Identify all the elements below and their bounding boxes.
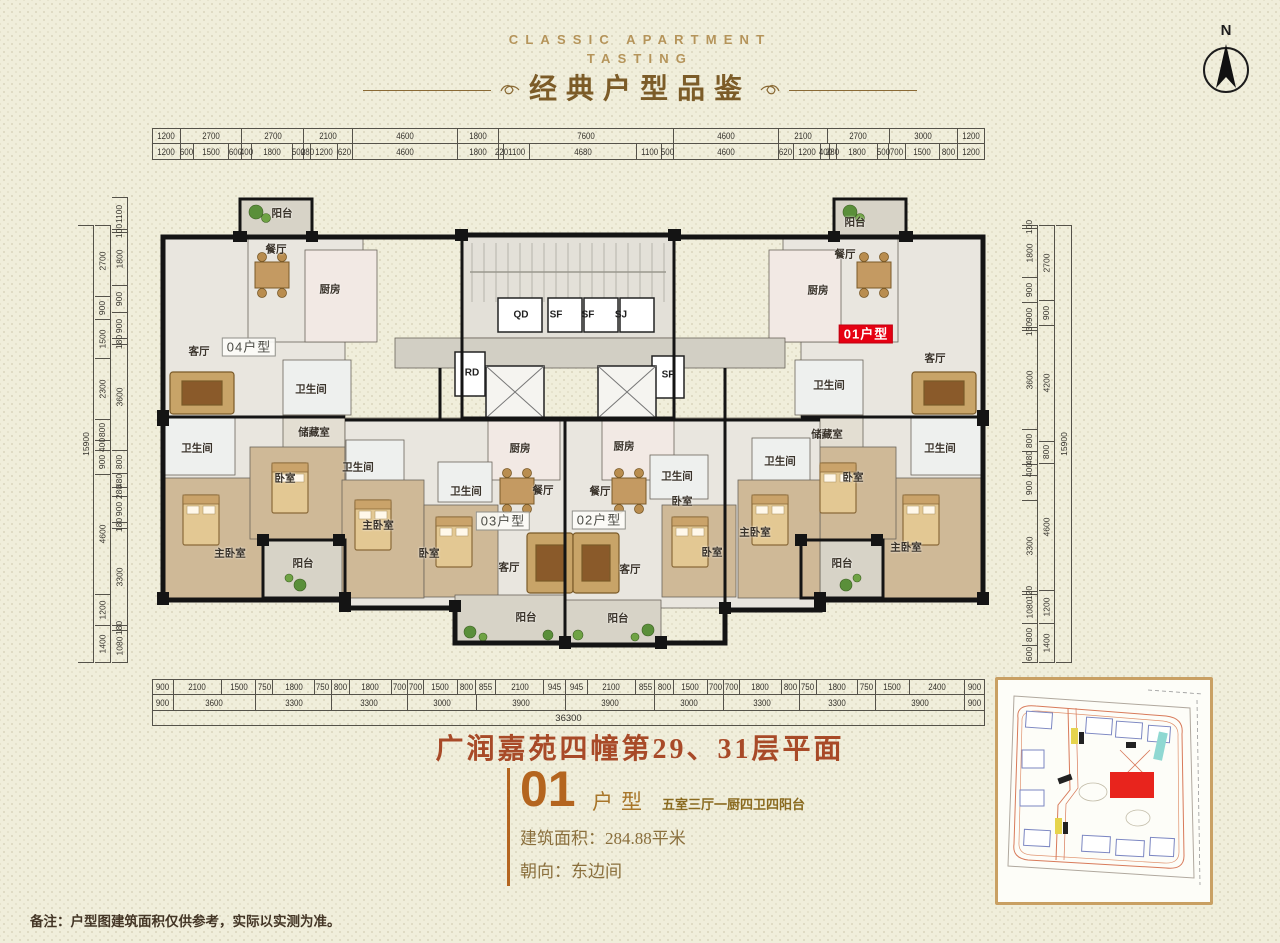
disclaimer-note: 备注：户型图建筑面积仅供参考，实际以实测为准。 [30, 910, 341, 930]
highlighted-building [1110, 772, 1154, 798]
bed-icon [752, 495, 788, 545]
orientation: 朝向：东边间 [520, 857, 622, 882]
unit-word: 户型 [592, 786, 650, 816]
bed-icon [820, 463, 856, 513]
unit-number: 01 [520, 760, 576, 818]
built-area: 建筑面积：284.88平米 [520, 824, 686, 849]
bed-icon [183, 495, 219, 545]
bed-icon [272, 463, 308, 513]
bed-icon [672, 517, 708, 567]
unit-description: 五室三厅一厨四卫四阳台 [662, 794, 805, 813]
site-plan-drawing [998, 680, 1204, 896]
bed-icon [903, 495, 939, 545]
site-plan-minimap [995, 677, 1213, 905]
bed-icon [436, 517, 472, 567]
bed-icon [355, 500, 391, 550]
title-divider-line [507, 768, 510, 886]
